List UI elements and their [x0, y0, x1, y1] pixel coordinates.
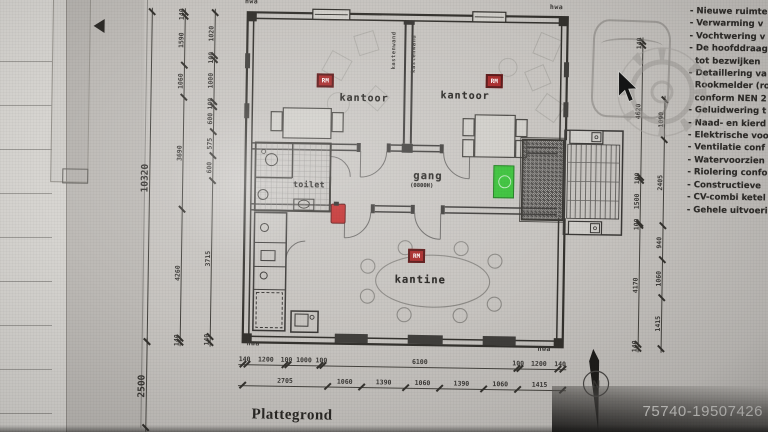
- smoke-detector-marker: RM: [317, 73, 334, 87]
- room-note-gang: (0800H): [410, 183, 433, 189]
- dimension-value: 2405: [656, 169, 664, 195]
- dimension-value: 940: [655, 230, 663, 256]
- room-label-toilet: toilet: [293, 180, 325, 190]
- dim-col-overall-height: 10320: [147, 12, 153, 342]
- dim-row-width-grid: 2705106013901060139010601415: [242, 385, 562, 391]
- entrance-mat: [520, 138, 566, 223]
- dim-col-front-strip: 2500: [145, 342, 147, 428]
- dimension-value: 10320: [139, 158, 151, 198]
- hwa-label-top-right: hwa: [550, 3, 563, 11]
- site-wall-cap: [62, 168, 88, 183]
- screenshot-photo: kantoor kantoor gang (0800H) toilet kant…: [0, 0, 768, 432]
- smoke-detector-marker: RM: [408, 249, 425, 263]
- spec-note-line: - Verwarming v: [690, 18, 768, 32]
- room-label-kantine: kantine: [395, 274, 446, 287]
- dim-col-left-inner: 102010010001006005756003715140: [210, 13, 216, 343]
- dimension-value: 1200: [258, 355, 274, 363]
- smoke-detector-marker: RM: [486, 74, 503, 88]
- spec-note-line: - CV-combi ketel: [687, 191, 768, 205]
- dimension-value: 1415: [654, 310, 662, 336]
- dimension-value: 2500: [136, 366, 148, 406]
- photo-bottom-vignette: [0, 425, 768, 432]
- drawing-title: Plattegrond: [251, 406, 332, 424]
- emergency-exit-sign: [493, 165, 515, 198]
- dimension-value: 2705: [277, 377, 293, 385]
- room-label-gang: gang: [413, 170, 442, 182]
- fire-extinguisher-icon: [331, 204, 346, 224]
- reference-arrow-icon: [86, 19, 104, 33]
- spec-note-line: - Riolering confo: [687, 166, 768, 180]
- kastenwand-label-right: kastenwand: [411, 27, 418, 73]
- dimension-value: 1390: [376, 378, 392, 386]
- kitchen-counter: [253, 212, 320, 332]
- room-label-kantoor-right: kantoor: [440, 90, 489, 102]
- listing-id-watermark: 75740-19507426: [643, 403, 763, 420]
- dimension-value: 1060: [337, 378, 353, 386]
- site-wall-band: [50, 0, 91, 183]
- spec-note-line: - Gehele uitvoeri: [687, 204, 768, 218]
- porch-grating: [563, 130, 623, 235]
- dimension-value: 1415: [532, 381, 548, 389]
- dim-col-left-outer: 1401590106036904260140: [180, 12, 186, 342]
- dimension-value: 1060: [415, 379, 431, 387]
- dimension-value: 1060: [492, 380, 508, 388]
- dimension-value: 1020: [207, 21, 215, 47]
- dimension-value: 3690: [175, 140, 183, 166]
- dimension-value: 6100: [412, 358, 428, 366]
- dimension-value: 1060: [177, 68, 185, 94]
- dimension-value: 1590: [177, 27, 185, 53]
- kastenwand-label-left: kastenwand: [391, 23, 398, 69]
- dimension-value: 4260: [174, 260, 182, 286]
- dimension-value: 1390: [454, 380, 470, 388]
- dimension-value: 1000: [296, 356, 312, 364]
- hwa-label-bottom-right: hwa: [538, 345, 551, 353]
- hwa-label-bottom-left: hwa: [247, 339, 260, 347]
- dim-row-width-detail: 1401200100100010061001001200140: [242, 364, 562, 370]
- sketch-furniture: [321, 29, 566, 123]
- dimension-value: 4170: [631, 272, 639, 298]
- dimension-value: 3715: [204, 246, 212, 272]
- mouse-cursor-icon: [617, 70, 639, 103]
- dimension-value: 1200: [531, 360, 547, 368]
- room-label-kantoor-left: kantoor: [339, 93, 388, 105]
- dimension-value: 1060: [655, 266, 663, 292]
- hwa-label-top-left: hwa: [245, 0, 258, 5]
- toilet-block: [255, 142, 331, 211]
